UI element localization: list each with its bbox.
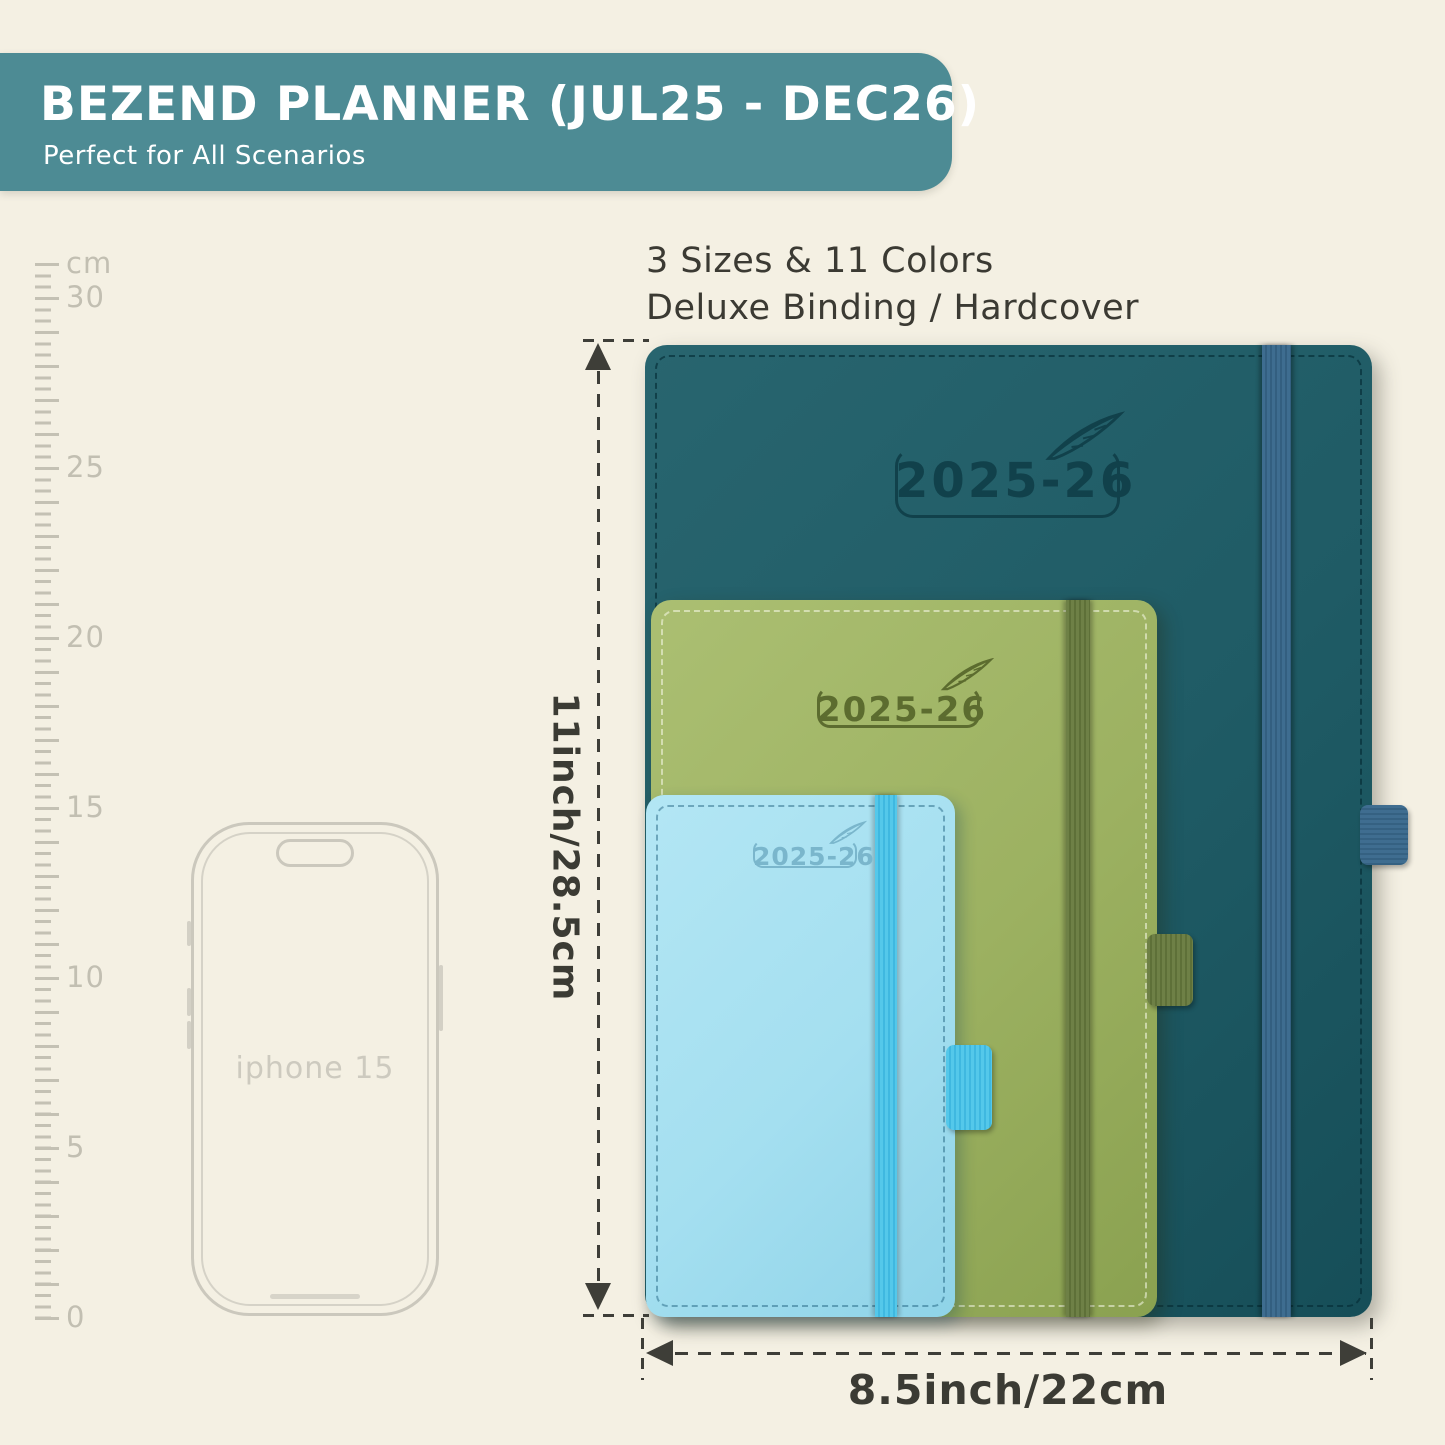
ruler-number-15: 15: [66, 790, 136, 824]
width-dimension-line: [652, 1352, 1366, 1355]
dynamic-island: [276, 839, 354, 867]
width-witness-left: [641, 1318, 644, 1380]
height-dimension-line: [597, 348, 600, 1308]
arrow-right-icon: [1340, 1340, 1367, 1366]
year-label: 2025-26: [817, 690, 980, 730]
feather-icon: [937, 658, 995, 692]
phone-power-button: [439, 965, 443, 1031]
pen-loop: [1147, 934, 1193, 1006]
ruler-unit-label: cm: [66, 246, 136, 280]
info-text: 3 Sizes & 11 Colors Deluxe Binding / Har…: [646, 238, 1139, 332]
arrow-left-icon: [646, 1340, 673, 1366]
width-dimension-label: 8.5inch/22cm: [808, 1366, 1208, 1414]
height-witness-bottom: [583, 1314, 649, 1317]
elastic-band: [875, 795, 897, 1317]
iphone-label: iphone 15: [194, 1051, 436, 1086]
year-label: 2025-26: [753, 842, 857, 871]
banner-subtitle: Perfect for All Scenarios: [43, 141, 366, 171]
elastic-band: [1066, 600, 1090, 1317]
ruler-number-25: 25: [66, 450, 136, 484]
info-line-binding: Deluxe Binding / Hardcover: [646, 285, 1139, 332]
height-witness-top: [583, 339, 649, 342]
phone-volume-down-button: [187, 1021, 191, 1049]
home-indicator: [270, 1294, 360, 1299]
year-logo: 2025-26: [753, 823, 857, 873]
header-banner: BEZEND PLANNER (JUL25 - DEC26) Perfect f…: [0, 53, 952, 191]
ruler-major-ticks: [35, 263, 59, 1321]
ruler-number-30: 30: [66, 280, 136, 314]
arrow-up-icon: [585, 343, 611, 370]
planner-small-blue: 2025-26: [646, 795, 955, 1317]
iphone-outline: iphone 15: [191, 822, 439, 1316]
year-logo: 2025-26: [895, 415, 1120, 525]
banner-title: BEZEND PLANNER (JUL25 - DEC26): [40, 77, 980, 132]
feather-icon: [827, 820, 867, 846]
year-logo: 2025-26: [817, 662, 980, 737]
pen-loop: [1360, 805, 1408, 865]
width-witness-right: [1370, 1318, 1373, 1380]
ruler-number-20: 20: [66, 620, 136, 654]
phone-volume-up-button: [187, 988, 191, 1016]
info-line-sizes-colors: 3 Sizes & 11 Colors: [646, 238, 1139, 285]
arrow-down-icon: [585, 1283, 611, 1310]
ruler-number-5: 5: [66, 1130, 136, 1164]
product-size-diagram: BEZEND PLANNER (JUL25 - DEC26) Perfect f…: [0, 0, 1445, 1445]
ruler-number-0: 0: [66, 1300, 136, 1334]
elastic-band: [1262, 345, 1291, 1317]
feather-icon: [1040, 411, 1126, 463]
height-dimension-label: 11inch/28.5cm: [545, 693, 586, 993]
pen-loop: [946, 1045, 992, 1130]
phone-side-button: [187, 921, 191, 946]
ruler-number-10: 10: [66, 960, 136, 994]
